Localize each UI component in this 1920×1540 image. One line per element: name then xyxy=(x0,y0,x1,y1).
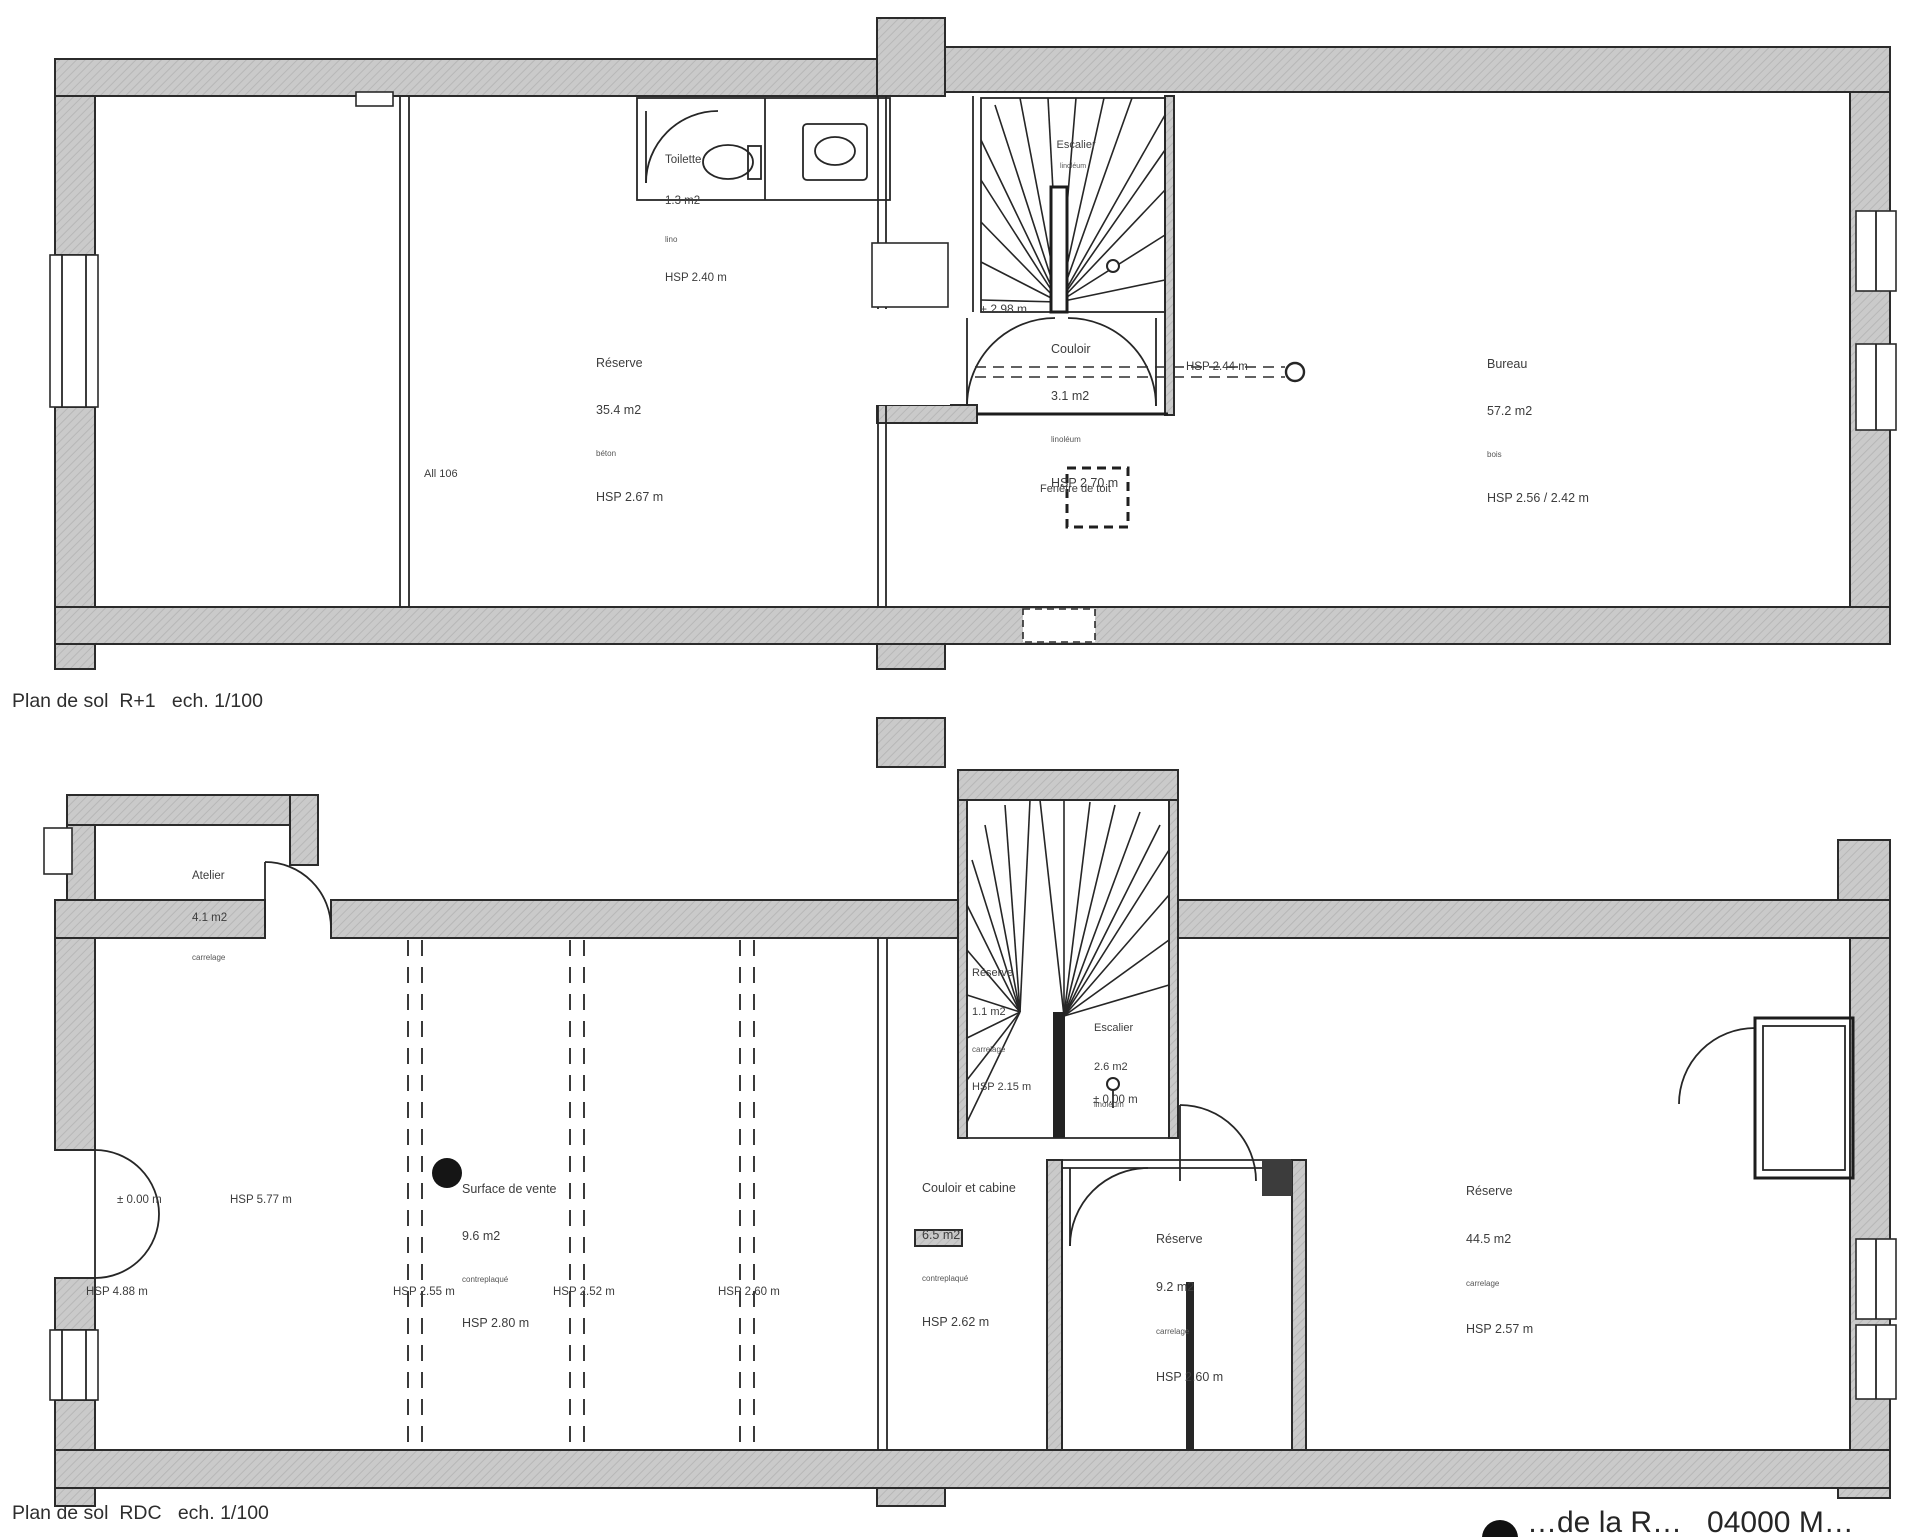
hsp-annotation-2: HSP 2.55 m xyxy=(393,1286,455,1298)
room-area: 2.6 m2 xyxy=(1094,1061,1133,1074)
plan-rdc-beam-lines xyxy=(408,940,754,1448)
title-block-dot xyxy=(1482,1520,1518,1537)
floorplan-sheet: Toilette 1.3 m2 lino HSP 2.40 m Réserve … xyxy=(0,0,1920,1537)
room-label-couloir-cabine: Couloir et cabine 6.5 m2 contreplaqué HS… xyxy=(922,1150,1016,1346)
plan-rdc-entry-doors xyxy=(95,1150,159,1278)
room-area: 57.2 m2 xyxy=(1487,404,1589,420)
room-area: 9.6 m2 xyxy=(462,1229,557,1245)
room-area: 35.4 m2 xyxy=(596,403,663,419)
room-name: Réserve xyxy=(1466,1183,1533,1199)
room-label-toilette: Toilette 1.3 m2 lino HSP 2.40 m xyxy=(665,127,727,299)
room-label-atelier-ext: Atelier 4.1 m2 carrelage xyxy=(192,841,227,977)
room-name: Réserve xyxy=(596,356,663,372)
room-label-reserve-stair: Réserve 1.1 m2 carrelage HSP 2.15 m xyxy=(972,941,1031,1107)
room-label-reserve-r1: Réserve 35.4 m2 béton HSP 2.67 m xyxy=(596,325,663,521)
room-name: Bureau xyxy=(1487,357,1589,373)
plan-rdc-atelier-door xyxy=(265,862,331,928)
room-area: 1.1 m2 xyxy=(972,1006,1031,1019)
room-area: 3.1 m2 xyxy=(1051,389,1118,405)
basin-fixture xyxy=(815,137,855,165)
plan-rdc-closet xyxy=(1755,1018,1853,1178)
room-floor-material: béton xyxy=(596,449,663,459)
level-annotation-entry: ± 0.00 m xyxy=(117,1194,162,1206)
room-height: HSP 2.80 m xyxy=(462,1316,557,1332)
hsp-annotation-4: HSP 2.60 m xyxy=(718,1286,780,1298)
room-area: 44.5 m2 xyxy=(1466,1231,1533,1247)
room-floor-material: carrelage xyxy=(972,1045,1031,1055)
hsp-dashed-annotation: HSP 2.44 m xyxy=(1186,361,1248,373)
room-floor-material: carrelage xyxy=(192,953,227,963)
basin-cabinet xyxy=(803,124,867,180)
room-label-couloir-r1: Couloir 3.1 m2 linoléum HSP 2.70 m xyxy=(1051,311,1118,507)
annotation-all106: All 106 xyxy=(424,468,458,480)
room-height: HSP 2.57 m xyxy=(1466,1321,1533,1337)
roof-window-label: Fenêtre de toit xyxy=(1040,483,1111,495)
room-floor-material: linoléum xyxy=(1038,163,1108,171)
room-area: 9.2 m2 xyxy=(1156,1279,1223,1295)
room-name: Couloir xyxy=(1051,342,1118,358)
room-height: HSP 2.60 m xyxy=(1156,1369,1223,1385)
room-height: HSP 2.62 m xyxy=(922,1315,1016,1331)
plan-rdc-walls xyxy=(44,718,1890,1506)
room-floor-material: contreplaqué xyxy=(462,1275,557,1285)
room-floor-material: linoléum xyxy=(1051,435,1118,445)
room-label-reserve-44: Réserve 44.5 m2 carrelage HSP 2.57 m xyxy=(1466,1151,1533,1353)
room-label-surface-vente: Surface de vente 9.6 m2 contreplaqué HSP… xyxy=(462,1151,557,1347)
hsp-annotation-1: HSP 4.88 m xyxy=(86,1286,148,1298)
room-label-bureau: Bureau 57.2 m2 bois HSP 2.56 / 2.42 m xyxy=(1487,326,1589,522)
room-area: 4.1 m2 xyxy=(192,911,227,925)
room-name: Atelier xyxy=(192,869,227,883)
room-name: Escalier xyxy=(1057,139,1096,151)
room-area: 1.3 m2 xyxy=(665,195,727,209)
room-floor-material: carrelage xyxy=(1466,1279,1533,1289)
room-name: Escalier xyxy=(1094,1022,1133,1035)
room-height: HSP 2.40 m xyxy=(665,272,727,286)
level-annotation-stair: ± 0.00 m xyxy=(1093,1094,1138,1106)
room-name: Couloir et cabine xyxy=(922,1181,1016,1197)
room-floor-material: carrelage xyxy=(1156,1327,1223,1337)
room-name: Réserve xyxy=(1156,1231,1223,1247)
room-height: HSP 2.67 m xyxy=(596,490,663,506)
hsp-annotation-3: HSP 2.52 m xyxy=(553,1286,615,1298)
room-height: HSP 2.56 / 2.42 m xyxy=(1487,491,1589,507)
room-height: HSP 2.15 m xyxy=(972,1081,1031,1094)
room-name: Surface de vente xyxy=(462,1182,557,1198)
room-floor-material: lino xyxy=(665,235,727,245)
title-block-text-clipped: …de la R… 04000 M… xyxy=(1527,1506,1854,1540)
plan-r1-caption: Plan de sol R+1 ech. 1/100 xyxy=(12,690,263,713)
room-label-escalier-r1: Escalier linoléum xyxy=(1038,127,1108,183)
room-floor-material: contreplaqué xyxy=(922,1274,1016,1284)
structural-column xyxy=(432,1158,462,1188)
room-floor-material: bois xyxy=(1487,450,1589,460)
room-name: Toilette xyxy=(665,154,727,168)
room-label-reserve-9: Réserve 9.2 m2 carrelage HSP 2.60 m xyxy=(1156,1199,1223,1401)
room-name: Réserve xyxy=(972,967,1031,980)
plan-rdc-caption: Plan de sol RDC ech. 1/100 xyxy=(12,1502,269,1525)
room-area: 6.5 m2 xyxy=(922,1228,1016,1244)
plan-r1-annotation-lines xyxy=(975,363,1304,527)
level-annotation-r1: + 2.98 m xyxy=(980,302,1027,316)
hsp-annotation-entry: HSP 5.77 m xyxy=(230,1194,292,1206)
handrail-post xyxy=(1107,260,1119,272)
